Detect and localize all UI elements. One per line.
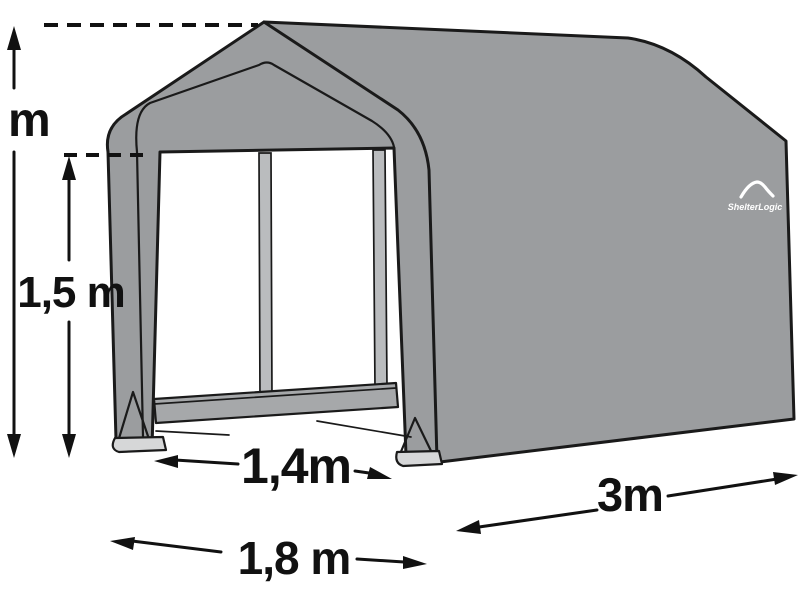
- dimension-line: [668, 479, 777, 496]
- door-pole-right: [373, 150, 387, 389]
- arrow-right-icon: [403, 556, 427, 569]
- depth-label: 3m: [597, 468, 663, 521]
- left-foot-plate: [113, 437, 166, 452]
- shelter-dimension-diagram: ShelterLogic m 1,5 m 1,4m: [0, 0, 800, 600]
- base-width-label: 1,8 m: [238, 532, 351, 584]
- dimension-line: [357, 559, 404, 562]
- ground-line-right: [317, 421, 411, 437]
- arrow-left-icon: [110, 537, 135, 550]
- arrow-down-icon: [7, 434, 21, 458]
- dimension-line: [132, 541, 221, 552]
- dimension-peak-height: m: [7, 26, 50, 458]
- arrow-down-icon: [62, 434, 76, 458]
- peak-height-label: m: [8, 94, 50, 147]
- diagram-canvas: ShelterLogic m 1,5 m 1,4m: [0, 0, 800, 600]
- arrow-right-icon: [367, 467, 392, 479]
- door-pole-left: [259, 153, 272, 402]
- eave-height-label: 1,5 m: [17, 268, 125, 317]
- logo-text: ShelterLogic: [728, 202, 783, 212]
- dimension-line: [355, 471, 369, 473]
- arrow-left-icon: [456, 520, 481, 534]
- shelter-illustration: ShelterLogic: [107, 22, 794, 466]
- door-width-label: 1,4m: [241, 438, 351, 494]
- ground-line-left: [156, 431, 229, 435]
- dimension-depth: 3m: [456, 468, 798, 534]
- dimension-base-width: 1,8 m: [110, 532, 427, 584]
- arrow-right-icon: [773, 472, 798, 485]
- base-rail: [154, 383, 398, 423]
- dimension-line: [479, 510, 597, 527]
- right-foot-plate: [396, 451, 442, 466]
- dimension-door-width: 1,4m: [154, 438, 392, 494]
- dimension-line: [175, 460, 238, 464]
- arrow-left-icon: [154, 455, 178, 468]
